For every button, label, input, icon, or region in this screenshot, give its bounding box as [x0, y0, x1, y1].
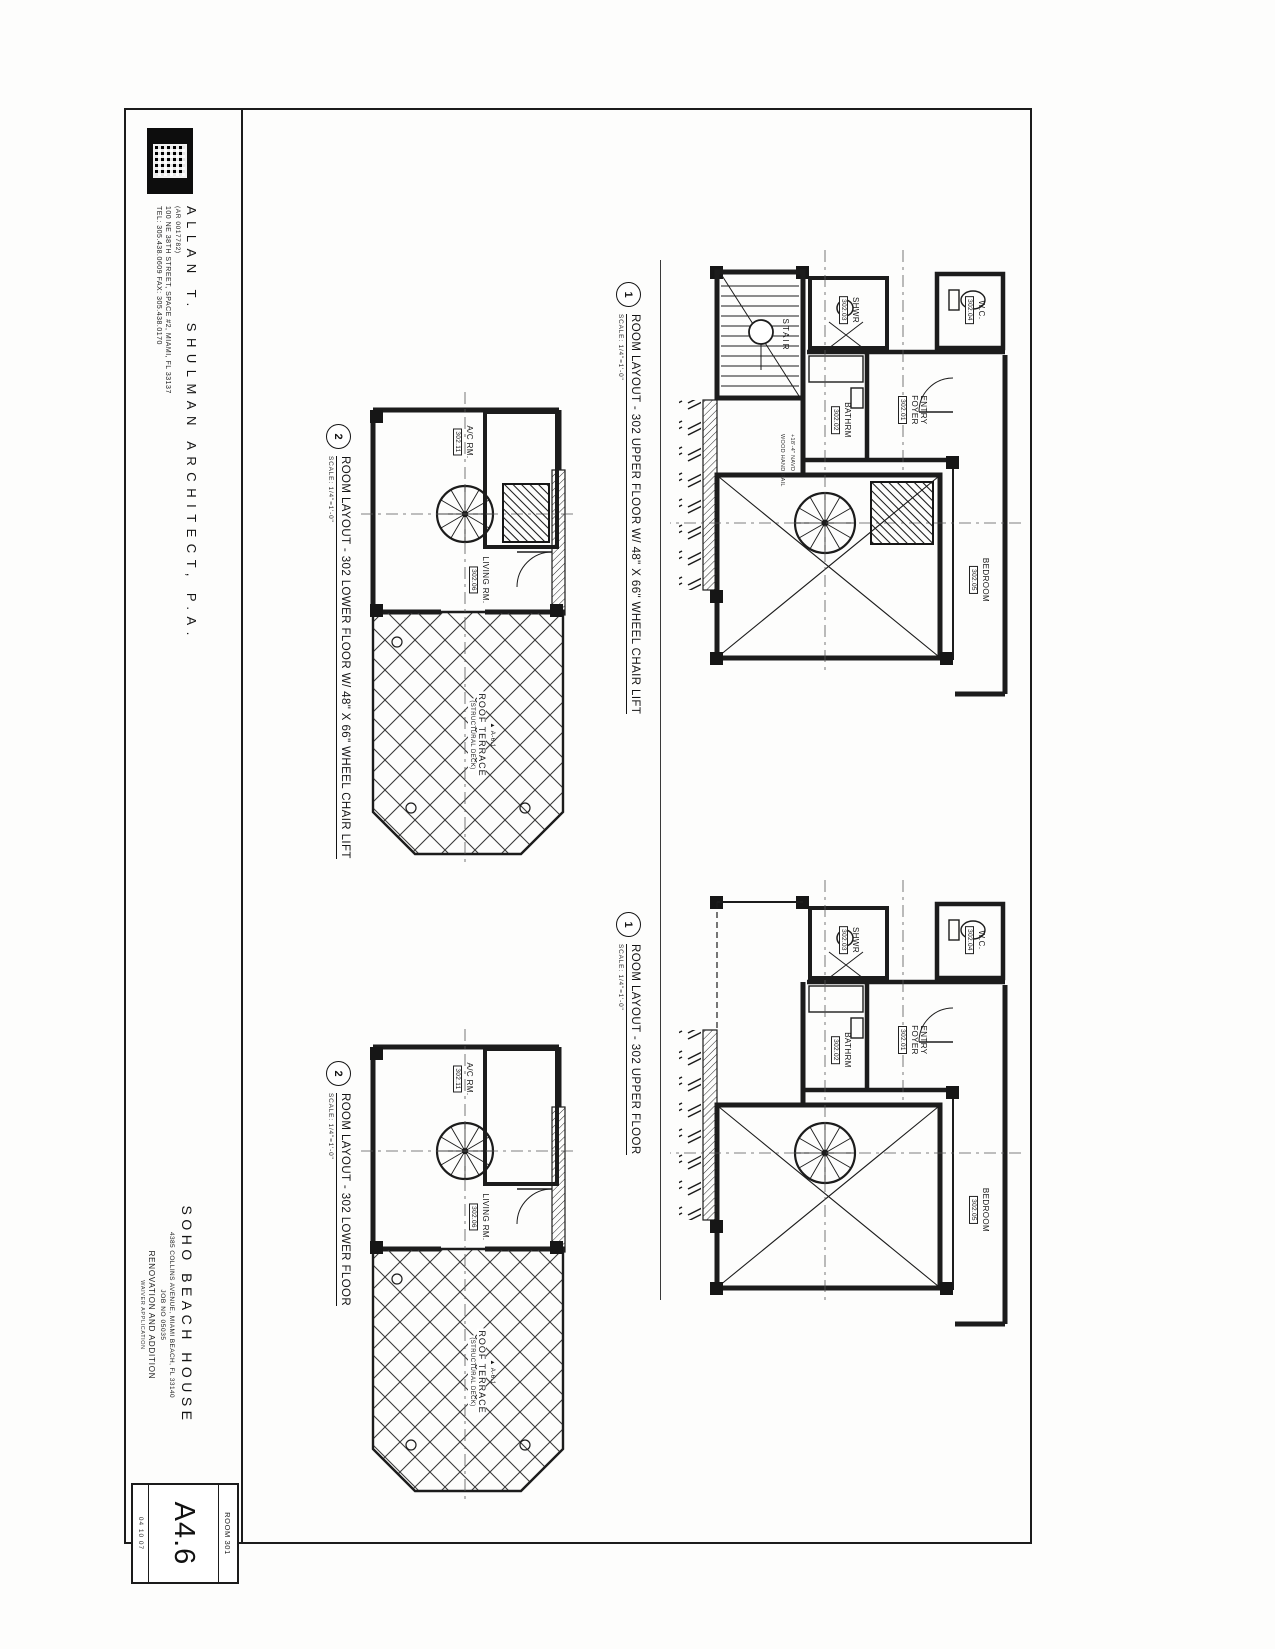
architect-block: ALLAN T. SHULMAN ARCHITECT, P.A. (AR 001…	[155, 206, 199, 726]
room-label-ac: A/C RM. 302.11	[453, 1062, 473, 1095]
plan-drawing-upper-lift	[670, 260, 1015, 700]
project-job-number: JOB NO 05035	[159, 1150, 166, 1480]
room-label-living: LIVING RM. 302.06	[469, 556, 489, 603]
room-label-ac: A/C RM. 302.11	[453, 425, 473, 458]
scanned-drawing-page: W.C. 302.04 ENTRY FOYER 302.01 BATHRM 30…	[0, 0, 1275, 1649]
terrace-subtitle: (STRUCTURAL DECK)	[468, 1335, 475, 1408]
plan-scale-text: SCALE: 1/4"=1'-0"	[327, 456, 334, 859]
plan-drawing-upper	[670, 890, 1015, 1330]
architect-license: (AR 0017782)	[174, 206, 181, 726]
sheet-room-label: ROOM 301	[218, 1485, 237, 1582]
room-label-entry-foyer: ENTRY FOYER 302.01	[898, 1022, 927, 1058]
sheet-date: 04 10 07	[133, 1485, 149, 1582]
project-address: 4385 COLLINS AVENUE, MIAMI BEACH, FL 331…	[168, 1150, 175, 1480]
architect-logo	[147, 128, 193, 194]
terrace-name: ROOF TERRACE	[477, 691, 487, 778]
room-label-roof-terrace: ▲ A-6.1 ROOF TERRACE (STRUCTURAL DECK)	[468, 1328, 495, 1415]
project-phase: RENOVATION AND ADDITION	[147, 1150, 156, 1480]
drawing-sheet: W.C. 302.04 ENTRY FOYER 302.01 BATHRM 30…	[0, 0, 1275, 1649]
plan-title-3: 1 ROOM LAYOUT - 302 UPPER FLOOR SCALE: 1…	[616, 912, 641, 1155]
plan-scale-text: SCALE: 1/4"=1'-0"	[617, 314, 624, 714]
titleblock-divider	[241, 108, 243, 1542]
room-label-bathrm: BATHRM 302.02	[831, 1032, 851, 1068]
plan-upper-plain: W.C. 302.04 ENTRY FOYER 302.01 BATHRM 30…	[599, 878, 1019, 1348]
architect-phone: TEL: 305.438.0609 FAX: 305.438.0170	[155, 206, 162, 726]
annotation-navd: +18'-4" NAVD	[789, 434, 795, 471]
detail-bubble: 2	[326, 1061, 351, 1086]
annotation-handrail: WOOD HAND RAIL	[779, 434, 785, 487]
plan-title-text: ROOM LAYOUT - 302 LOWER FLOOR	[336, 1093, 351, 1306]
room-label-bathrm: BATHRM 302.02	[831, 402, 851, 438]
room-label-shwr: SHWR 302.03	[839, 926, 859, 954]
detail-bubble: 1	[616, 282, 641, 307]
architect-name: ALLAN T. SHULMAN ARCHITECT, P.A.	[184, 206, 199, 726]
architect-address: 100 NE 38TH STREET, SPACE #2, MIAMI, FL …	[165, 206, 172, 726]
plan-drawing-lower-lift	[360, 400, 565, 860]
logo-pattern-icon	[153, 144, 187, 178]
section-marker-icon: ▲	[489, 722, 495, 728]
detail-bubble: 2	[326, 424, 351, 449]
terrace-name: ROOF TERRACE	[477, 1328, 487, 1415]
room-label-shwr: SHWR 302.03	[839, 296, 859, 324]
plan-title-1: 1 ROOM LAYOUT - 302 UPPER FLOOR W/ 48" X…	[616, 282, 641, 714]
plan-title-text: ROOM LAYOUT - 302 LOWER FLOOR W/ 48" X 6…	[336, 456, 351, 859]
room-label-entry-foyer: ENTRY FOYER 302.01	[898, 392, 927, 428]
terrace-section-ref: A-6.1	[489, 1368, 495, 1385]
plan-title-text: ROOM LAYOUT - 302 UPPER FLOOR	[626, 944, 641, 1155]
plan-title-2: 2 ROOM LAYOUT - 302 LOWER FLOOR W/ 48" X…	[326, 424, 351, 859]
sheet-number: A4.6	[149, 1485, 218, 1582]
detail-bubble: 1	[616, 912, 641, 937]
plan-title-4: 2 ROOM LAYOUT - 302 LOWER FLOOR SCALE: 1…	[326, 1061, 351, 1306]
room-label-wc: W.C. 302.04	[965, 296, 985, 324]
project-block: SOHO BEACH HOUSE 4385 COLLINS AVENUE, MI…	[139, 1150, 195, 1480]
plan-scale-text: SCALE: 1/4"=1'-0"	[617, 944, 624, 1155]
room-label-bedroom: BEDROOM 302.05	[969, 558, 989, 602]
plan-lower-with-lift: A/C RM. 302.11 LIVING RM. 302.06 ▲ A-6.1…	[313, 398, 573, 872]
room-label-bedroom: BEDROOM 302.05	[969, 1188, 989, 1232]
terrace-section-ref: A-6.1	[489, 731, 495, 748]
plan-upper-with-lift: W.C. 302.04 ENTRY FOYER 302.01 BATHRM 30…	[599, 248, 1019, 718]
sheet-number-box: ROOM 301 A4.6 04 10 07	[131, 1483, 239, 1584]
terrace-subtitle: (STRUCTURAL DECK)	[468, 698, 475, 771]
room-label-stair: STAIR	[780, 319, 789, 352]
project-name: SOHO BEACH HOUSE	[179, 1150, 195, 1480]
room-label-living: LIVING RM. 302.06	[469, 1193, 489, 1240]
room-label-roof-terrace: ▲ A-6.1 ROOF TERRACE (STRUCTURAL DECK)	[468, 691, 495, 778]
plan-drawing-lower	[360, 1037, 565, 1497]
section-marker-icon: ▲	[489, 1359, 495, 1365]
plan-title-text: ROOM LAYOUT - 302 UPPER FLOOR W/ 48" X 6…	[626, 314, 641, 714]
room-label-wc: W.C. 302.04	[965, 926, 985, 954]
plan-lower-plain: A/C RM. 302.11 LIVING RM. 302.06 ▲ A-6.1…	[313, 1035, 573, 1509]
plan-scale-text: SCALE: 1/4"=1'-0"	[327, 1093, 334, 1306]
project-subphase: WAIVER APPLICATION	[139, 1150, 145, 1480]
